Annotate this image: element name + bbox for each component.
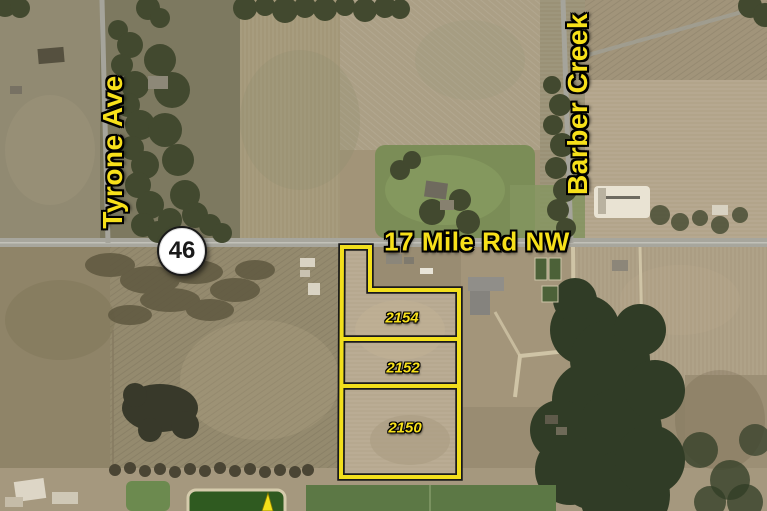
parcel-label-2154: 2154	[385, 310, 418, 327]
highway-46-shield: 46	[157, 226, 207, 276]
gas-station-pad	[594, 186, 650, 218]
highway-46-shield-number: 46	[169, 237, 196, 265]
parcel-label-2152: 2152	[386, 360, 419, 377]
aerial-parcel-map: Tyrone Ave Barber Creek 17 Mile Rd NW 46…	[0, 0, 767, 511]
parcel-label-2150: 2150	[388, 420, 421, 437]
road-label-barber-creek: Barber Creek	[562, 13, 594, 195]
road-label-tyrone-ave: Tyrone Ave	[97, 75, 129, 228]
road-label-17-mile-rd: 17 Mile Rd NW	[384, 227, 570, 258]
